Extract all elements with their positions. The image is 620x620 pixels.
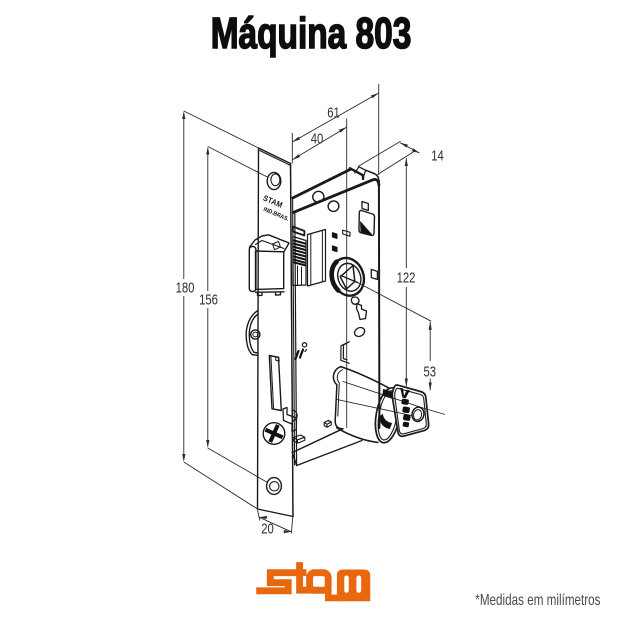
svg-text:Máquina 803: Máquina 803	[211, 10, 412, 58]
svg-text:61: 61	[327, 104, 340, 121]
svg-text:20: 20	[261, 520, 274, 537]
svg-text:*Medidas em milímetros: *Medidas em milímetros	[475, 590, 600, 608]
svg-text:122: 122	[397, 269, 416, 286]
svg-text:14: 14	[431, 147, 444, 164]
svg-text:180: 180	[176, 279, 195, 296]
svg-text:156: 156	[199, 291, 218, 308]
svg-text:53: 53	[424, 363, 437, 380]
svg-text:40: 40	[311, 130, 324, 147]
